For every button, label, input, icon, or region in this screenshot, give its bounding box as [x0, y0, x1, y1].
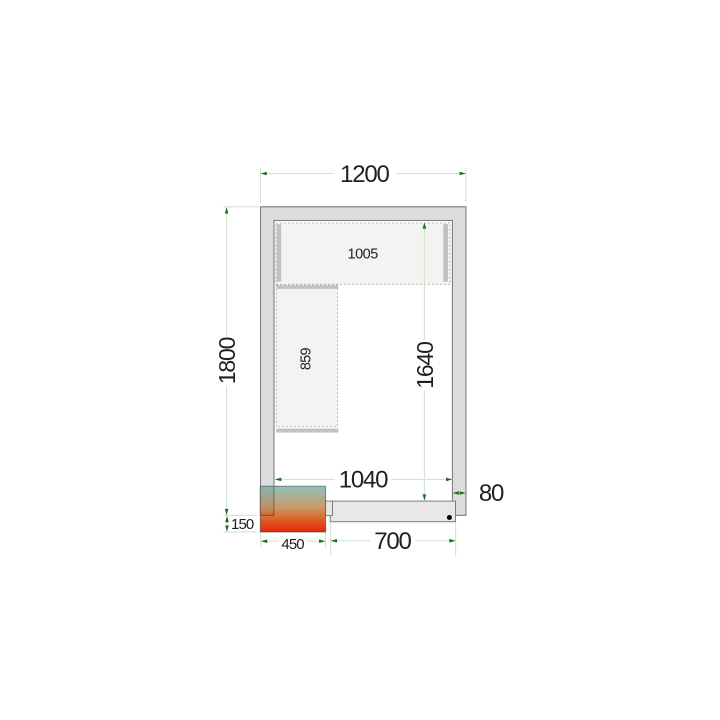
svg-text:700: 700	[374, 528, 411, 555]
svg-text:80: 80	[479, 480, 504, 507]
svg-text:1800: 1800	[214, 337, 240, 384]
svg-text:1200: 1200	[340, 161, 389, 188]
svg-text:150: 150	[231, 516, 254, 533]
svg-text:1005: 1005	[347, 247, 378, 263]
svg-text:1040: 1040	[339, 466, 388, 493]
svg-text:859: 859	[299, 348, 315, 371]
svg-text:450: 450	[281, 536, 304, 553]
svg-text:1640: 1640	[412, 342, 438, 389]
